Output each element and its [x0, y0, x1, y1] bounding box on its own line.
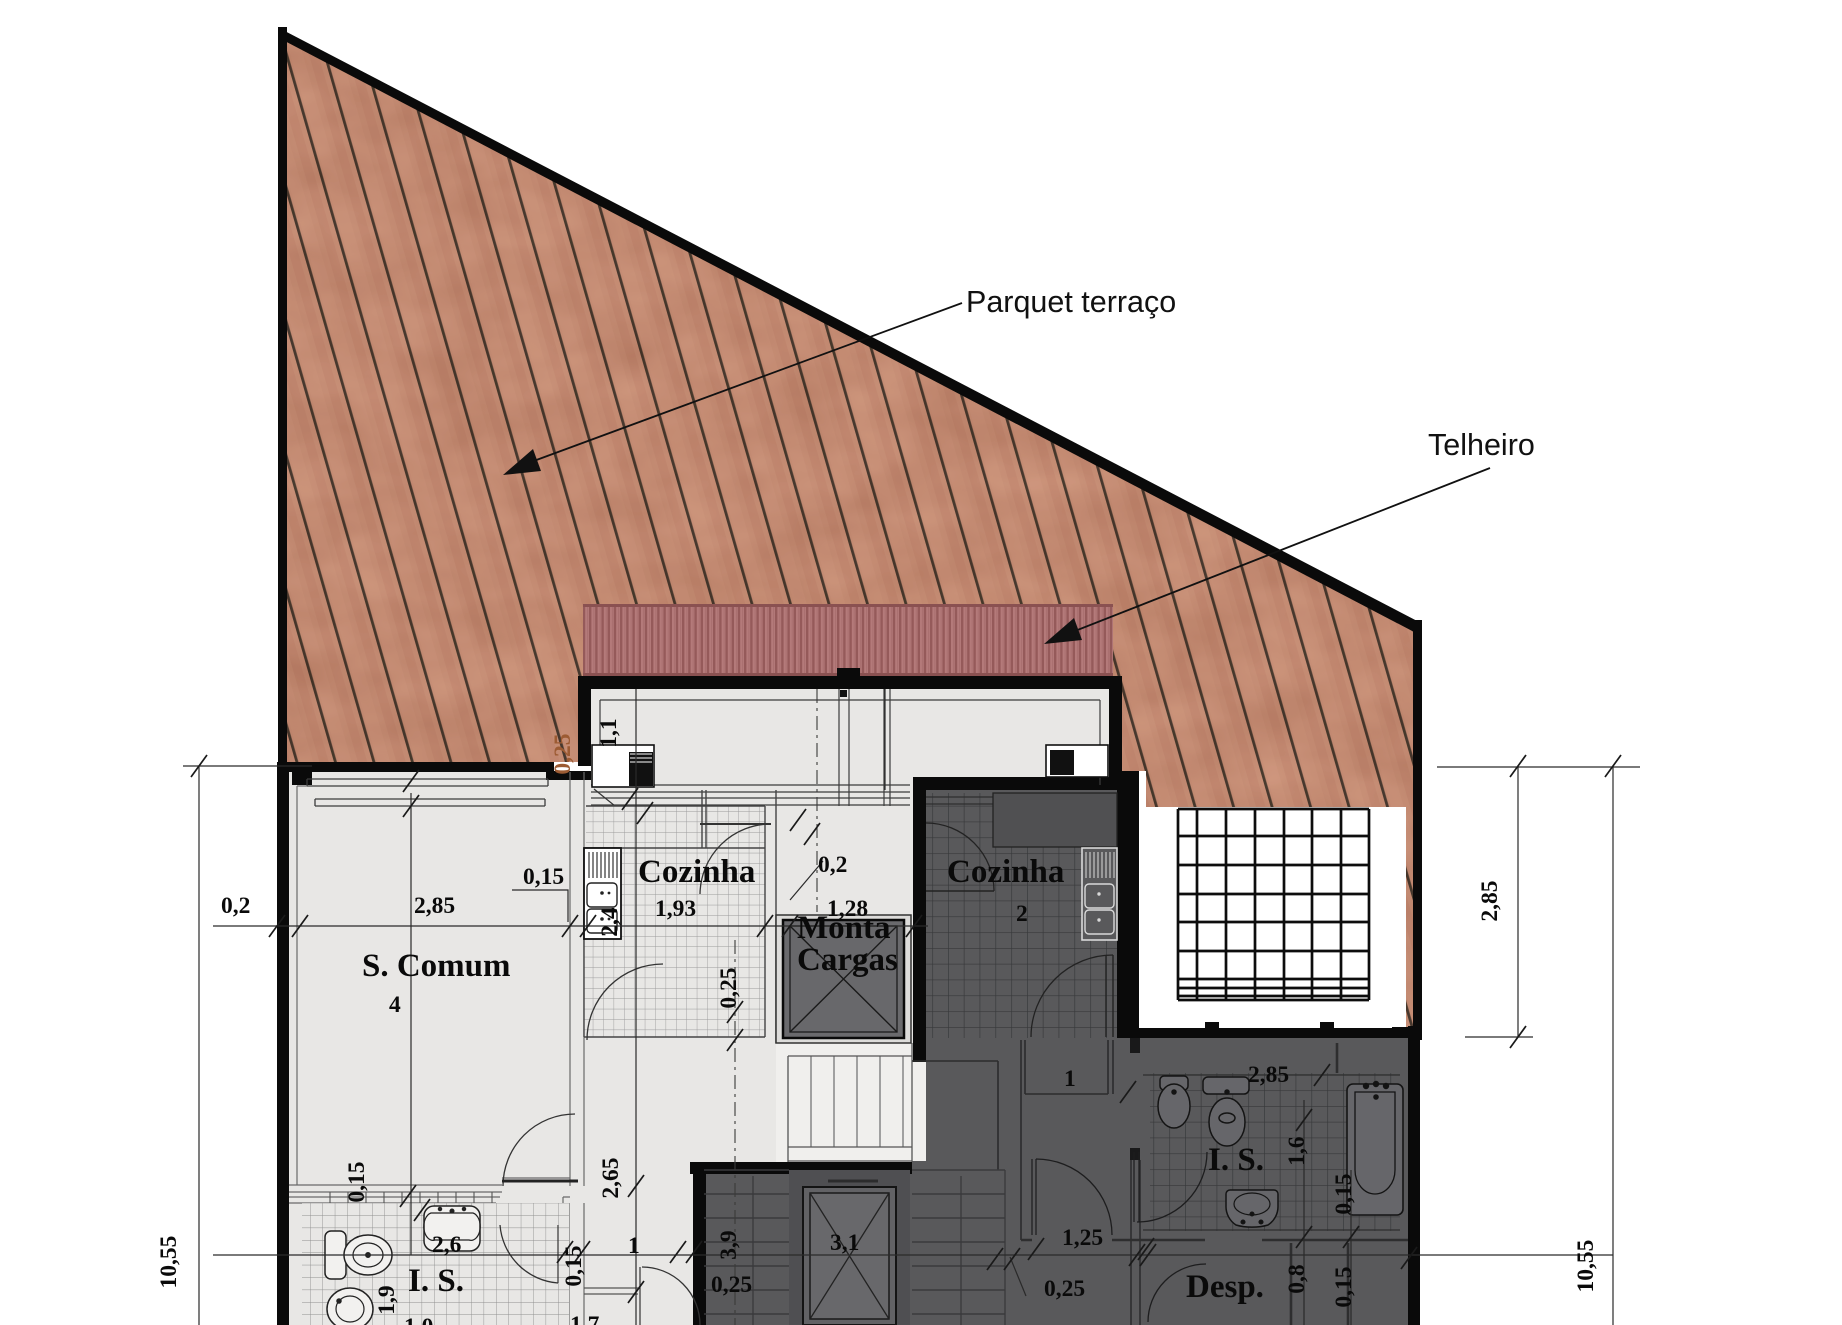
svg-text:2,65: 2,65 [598, 1157, 624, 1198]
svg-text:2,6: 2,6 [432, 1232, 462, 1258]
svg-text:0,2: 0,2 [818, 852, 847, 878]
svg-text:2,85: 2,85 [1477, 880, 1503, 921]
svg-text:1,0: 1,0 [404, 1314, 433, 1325]
svg-text:0,25: 0,25 [711, 1272, 752, 1298]
svg-text:2,4: 2,4 [597, 907, 623, 937]
svg-text:Parquet terraço: Parquet terraço [966, 285, 1176, 319]
svg-text:0,15: 0,15 [344, 1161, 370, 1202]
svg-text:1,7: 1,7 [570, 1312, 600, 1325]
svg-text:Cargas: Cargas [797, 942, 898, 978]
svg-text:0,25: 0,25 [1044, 1276, 1085, 1302]
svg-text:Monta: Monta [797, 910, 891, 946]
svg-text:Cozinha: Cozinha [638, 854, 755, 890]
svg-text:2,85: 2,85 [1248, 1062, 1289, 1088]
svg-text:1,1: 1,1 [596, 718, 622, 747]
svg-text:2: 2 [1016, 901, 1028, 927]
svg-text:0,15: 0,15 [1331, 1266, 1357, 1307]
svg-text:Desp.: Desp. [1186, 1269, 1264, 1305]
svg-text:1,25: 1,25 [1062, 1225, 1103, 1251]
svg-text:3,1: 3,1 [830, 1230, 859, 1256]
svg-text:0,15: 0,15 [1331, 1173, 1357, 1214]
svg-text:10,55: 10,55 [1573, 1240, 1599, 1293]
svg-text:S. Comum: S. Comum [362, 948, 511, 984]
svg-text:0,15: 0,15 [561, 1245, 587, 1286]
svg-text:1,6: 1,6 [1284, 1136, 1310, 1166]
svg-text:I. S.: I. S. [408, 1263, 464, 1299]
svg-text:1: 1 [628, 1233, 640, 1259]
svg-text:0,15: 0,15 [523, 864, 564, 890]
svg-text:Cozinha: Cozinha [947, 854, 1064, 890]
svg-text:4: 4 [389, 992, 401, 1018]
svg-text:1,9: 1,9 [374, 1285, 400, 1314]
svg-text:2,85: 2,85 [414, 893, 455, 919]
svg-text:I. S.: I. S. [1208, 1142, 1264, 1178]
svg-text:0,2: 0,2 [221, 893, 250, 919]
svg-text:10,55: 10,55 [156, 1236, 182, 1289]
svg-text:3,9: 3,9 [716, 1230, 742, 1259]
svg-text:0,8: 0,8 [1284, 1264, 1310, 1293]
svg-text:Telheiro: Telheiro [1428, 428, 1535, 462]
svg-text:0,25: 0,25 [716, 967, 742, 1008]
svg-text:0,25: 0,25 [550, 733, 576, 774]
svg-text:1: 1 [1064, 1066, 1076, 1092]
svg-text:1,93: 1,93 [655, 896, 696, 922]
